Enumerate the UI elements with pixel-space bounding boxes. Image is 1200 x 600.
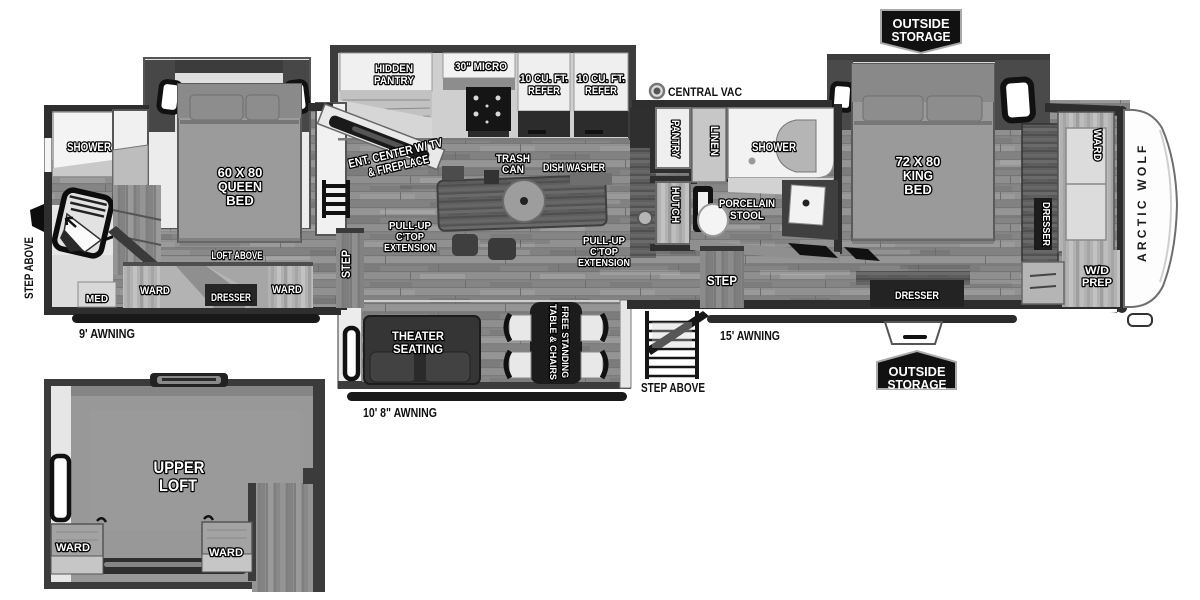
svg-text:LOFT: LOFT bbox=[159, 476, 198, 495]
svg-text:10' 8" AWNING: 10' 8" AWNING bbox=[363, 405, 437, 420]
svg-text:15' AWNING: 15' AWNING bbox=[720, 328, 780, 343]
svg-text:BED: BED bbox=[904, 182, 931, 197]
svg-text:REFER: REFER bbox=[528, 85, 560, 97]
svg-text:ARCTIC WOLF: ARCTIC WOLF bbox=[1135, 144, 1149, 262]
svg-text:HUTCH: HUTCH bbox=[669, 187, 681, 223]
svg-text:STEP: STEP bbox=[707, 273, 737, 288]
svg-text:THEATER: THEATER bbox=[392, 329, 444, 343]
svg-text:60 X 80: 60 X 80 bbox=[218, 165, 263, 180]
svg-text:SEATING: SEATING bbox=[393, 342, 443, 356]
svg-text:10 CU. FT.: 10 CU. FT. bbox=[577, 73, 625, 85]
svg-text:CENTRAL VAC: CENTRAL VAC bbox=[668, 85, 742, 99]
svg-text:FREE STANDING: FREE STANDING bbox=[559, 306, 570, 378]
svg-text:LOFT ABOVE: LOFT ABOVE bbox=[212, 250, 263, 262]
svg-text:PANTRY: PANTRY bbox=[669, 120, 681, 159]
svg-text:STORAGE: STORAGE bbox=[888, 378, 947, 392]
svg-text:WARD: WARD bbox=[209, 547, 243, 559]
svg-text:TABLE & CHAIRS: TABLE & CHAIRS bbox=[547, 304, 558, 380]
svg-text:EXTENSION: EXTENSION bbox=[384, 242, 436, 254]
svg-text:WARD: WARD bbox=[272, 284, 302, 296]
svg-text:OUTSIDE: OUTSIDE bbox=[889, 365, 946, 379]
svg-text:DRESSER: DRESSER bbox=[895, 290, 939, 302]
svg-text:9' AWNING: 9' AWNING bbox=[79, 326, 135, 341]
svg-text:UPPER: UPPER bbox=[154, 458, 205, 477]
svg-text:KING: KING bbox=[903, 168, 933, 183]
svg-text:STOOL: STOOL bbox=[730, 210, 764, 222]
svg-text:DRESSER: DRESSER bbox=[211, 292, 251, 304]
svg-text:W/D: W/D bbox=[1085, 265, 1109, 277]
svg-text:HIDDEN: HIDDEN bbox=[375, 63, 413, 75]
svg-text:EXTENSION: EXTENSION bbox=[578, 257, 630, 269]
svg-text:OUTSIDE: OUTSIDE bbox=[893, 17, 950, 31]
svg-text:REFER: REFER bbox=[585, 85, 617, 97]
svg-text:LINEN: LINEN bbox=[708, 126, 720, 156]
svg-text:STEP ABOVE: STEP ABOVE bbox=[22, 237, 36, 299]
svg-text:MED: MED bbox=[86, 294, 108, 305]
svg-text:SHOWER: SHOWER bbox=[67, 140, 111, 154]
svg-text:WARD: WARD bbox=[140, 285, 170, 297]
svg-text:BED: BED bbox=[226, 193, 253, 208]
svg-text:WARD: WARD bbox=[1091, 129, 1103, 161]
svg-text:SHOWER: SHOWER bbox=[752, 140, 796, 154]
svg-text:DISH WASHER: DISH WASHER bbox=[543, 162, 605, 174]
svg-text:PORCELAIN: PORCELAIN bbox=[719, 198, 775, 210]
svg-text:10 CU. FT.: 10 CU. FT. bbox=[520, 73, 568, 85]
svg-text:72 X 80: 72 X 80 bbox=[896, 154, 941, 169]
svg-text:STEP ABOVE: STEP ABOVE bbox=[641, 380, 705, 395]
svg-text:30" MICRO: 30" MICRO bbox=[455, 61, 507, 73]
svg-text:STEP: STEP bbox=[339, 250, 353, 278]
svg-text:PANTRY: PANTRY bbox=[374, 75, 415, 87]
svg-text:QUEEN: QUEEN bbox=[218, 179, 262, 194]
svg-text:STORAGE: STORAGE bbox=[892, 30, 951, 44]
svg-text:WARD: WARD bbox=[56, 542, 90, 554]
svg-text:DRESSER: DRESSER bbox=[1040, 202, 1051, 247]
svg-text:PREP: PREP bbox=[1082, 277, 1112, 289]
svg-text:CAN: CAN bbox=[502, 164, 524, 176]
